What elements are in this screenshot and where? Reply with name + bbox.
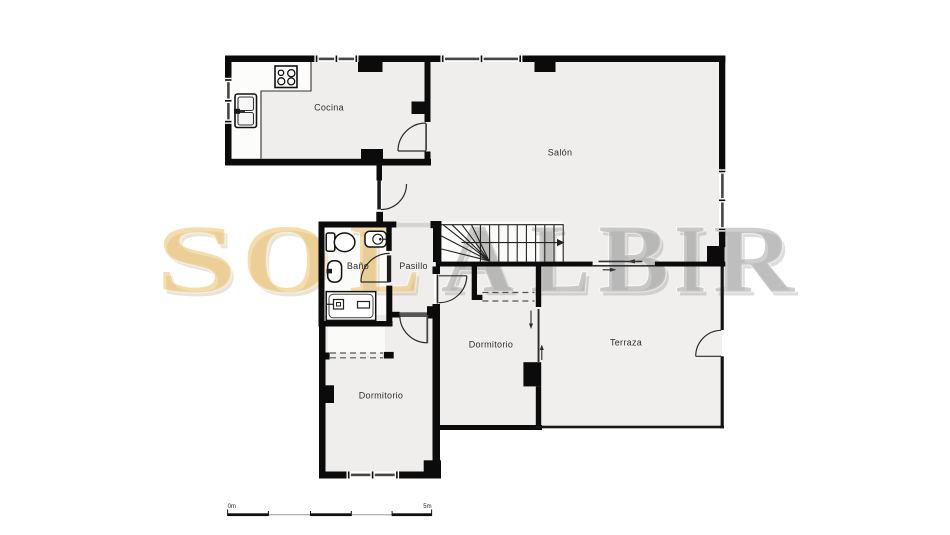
svg-text:5m: 5m: [423, 504, 431, 510]
svg-text:0m: 0m: [228, 504, 236, 510]
svg-text:I: I: [674, 206, 706, 313]
svg-text:Terraza: Terraza: [610, 338, 642, 348]
svg-text:Dormitorio: Dormitorio: [359, 391, 404, 401]
svg-text:S: S: [156, 206, 237, 313]
svg-text:O: O: [242, 206, 331, 313]
svg-text:Pasillo: Pasillo: [399, 261, 428, 271]
svg-text:Cocina: Cocina: [314, 103, 344, 113]
svg-text:R: R: [713, 206, 795, 313]
svg-text:Baño: Baño: [347, 261, 369, 271]
svg-text:B: B: [599, 206, 669, 313]
svg-text:Dormitorio: Dormitorio: [469, 340, 514, 350]
svg-text:Salón: Salón: [548, 148, 573, 158]
